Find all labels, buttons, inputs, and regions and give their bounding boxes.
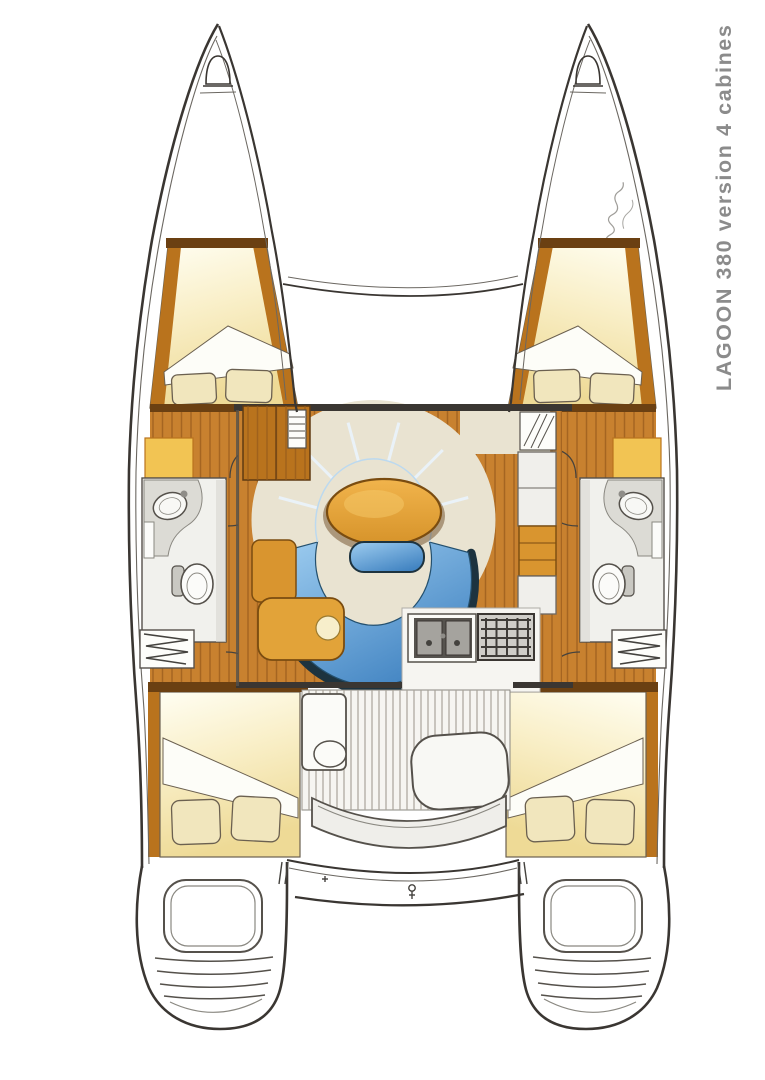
- salon-aft-bulkhead: [236, 682, 402, 688]
- cockpit: [302, 690, 510, 848]
- pillow: [225, 369, 272, 403]
- port-locker: [145, 438, 193, 478]
- starboard-companionway-steps: [520, 412, 556, 450]
- galley-drawers: [519, 526, 556, 576]
- galley-faucet: [441, 634, 446, 639]
- sink-basin: [446, 621, 470, 655]
- deck-plan-page: LAGOON 380 version 4 cabines: [0, 0, 765, 1080]
- deck-plan-drawing: LAGOON 380 version 4 cabines: [0, 0, 765, 1080]
- port-head: [142, 478, 226, 642]
- starboard-head: [580, 478, 664, 642]
- galley-cabinets: [518, 452, 556, 614]
- cockpit-lounge: [410, 731, 511, 812]
- plan-title: LAGOON 380 version 4 cabines: [712, 24, 736, 391]
- hull-stairs: [140, 630, 194, 668]
- galley: [402, 608, 540, 692]
- desk-stool: [316, 616, 340, 640]
- aft-beam: [287, 860, 524, 905]
- swim-platform: [164, 880, 262, 952]
- transom-steps: [137, 862, 287, 1029]
- cabin-bulkhead: [166, 238, 268, 248]
- toilet: [181, 564, 213, 604]
- nav-seat: [252, 540, 296, 602]
- cockpit-chair: [314, 741, 346, 767]
- salon: [234, 400, 573, 692]
- port-companionway-steps: [288, 410, 306, 448]
- sink-basin: [417, 621, 442, 655]
- footstool: [350, 542, 424, 572]
- port-forward-cabin: [150, 238, 298, 408]
- forward-beam: [283, 276, 523, 296]
- shelf: [144, 522, 154, 558]
- port-aft-cabin: [148, 692, 300, 857]
- faucet: [181, 491, 188, 498]
- pillow: [231, 796, 281, 842]
- pillow: [171, 799, 221, 845]
- pillow: [171, 373, 217, 405]
